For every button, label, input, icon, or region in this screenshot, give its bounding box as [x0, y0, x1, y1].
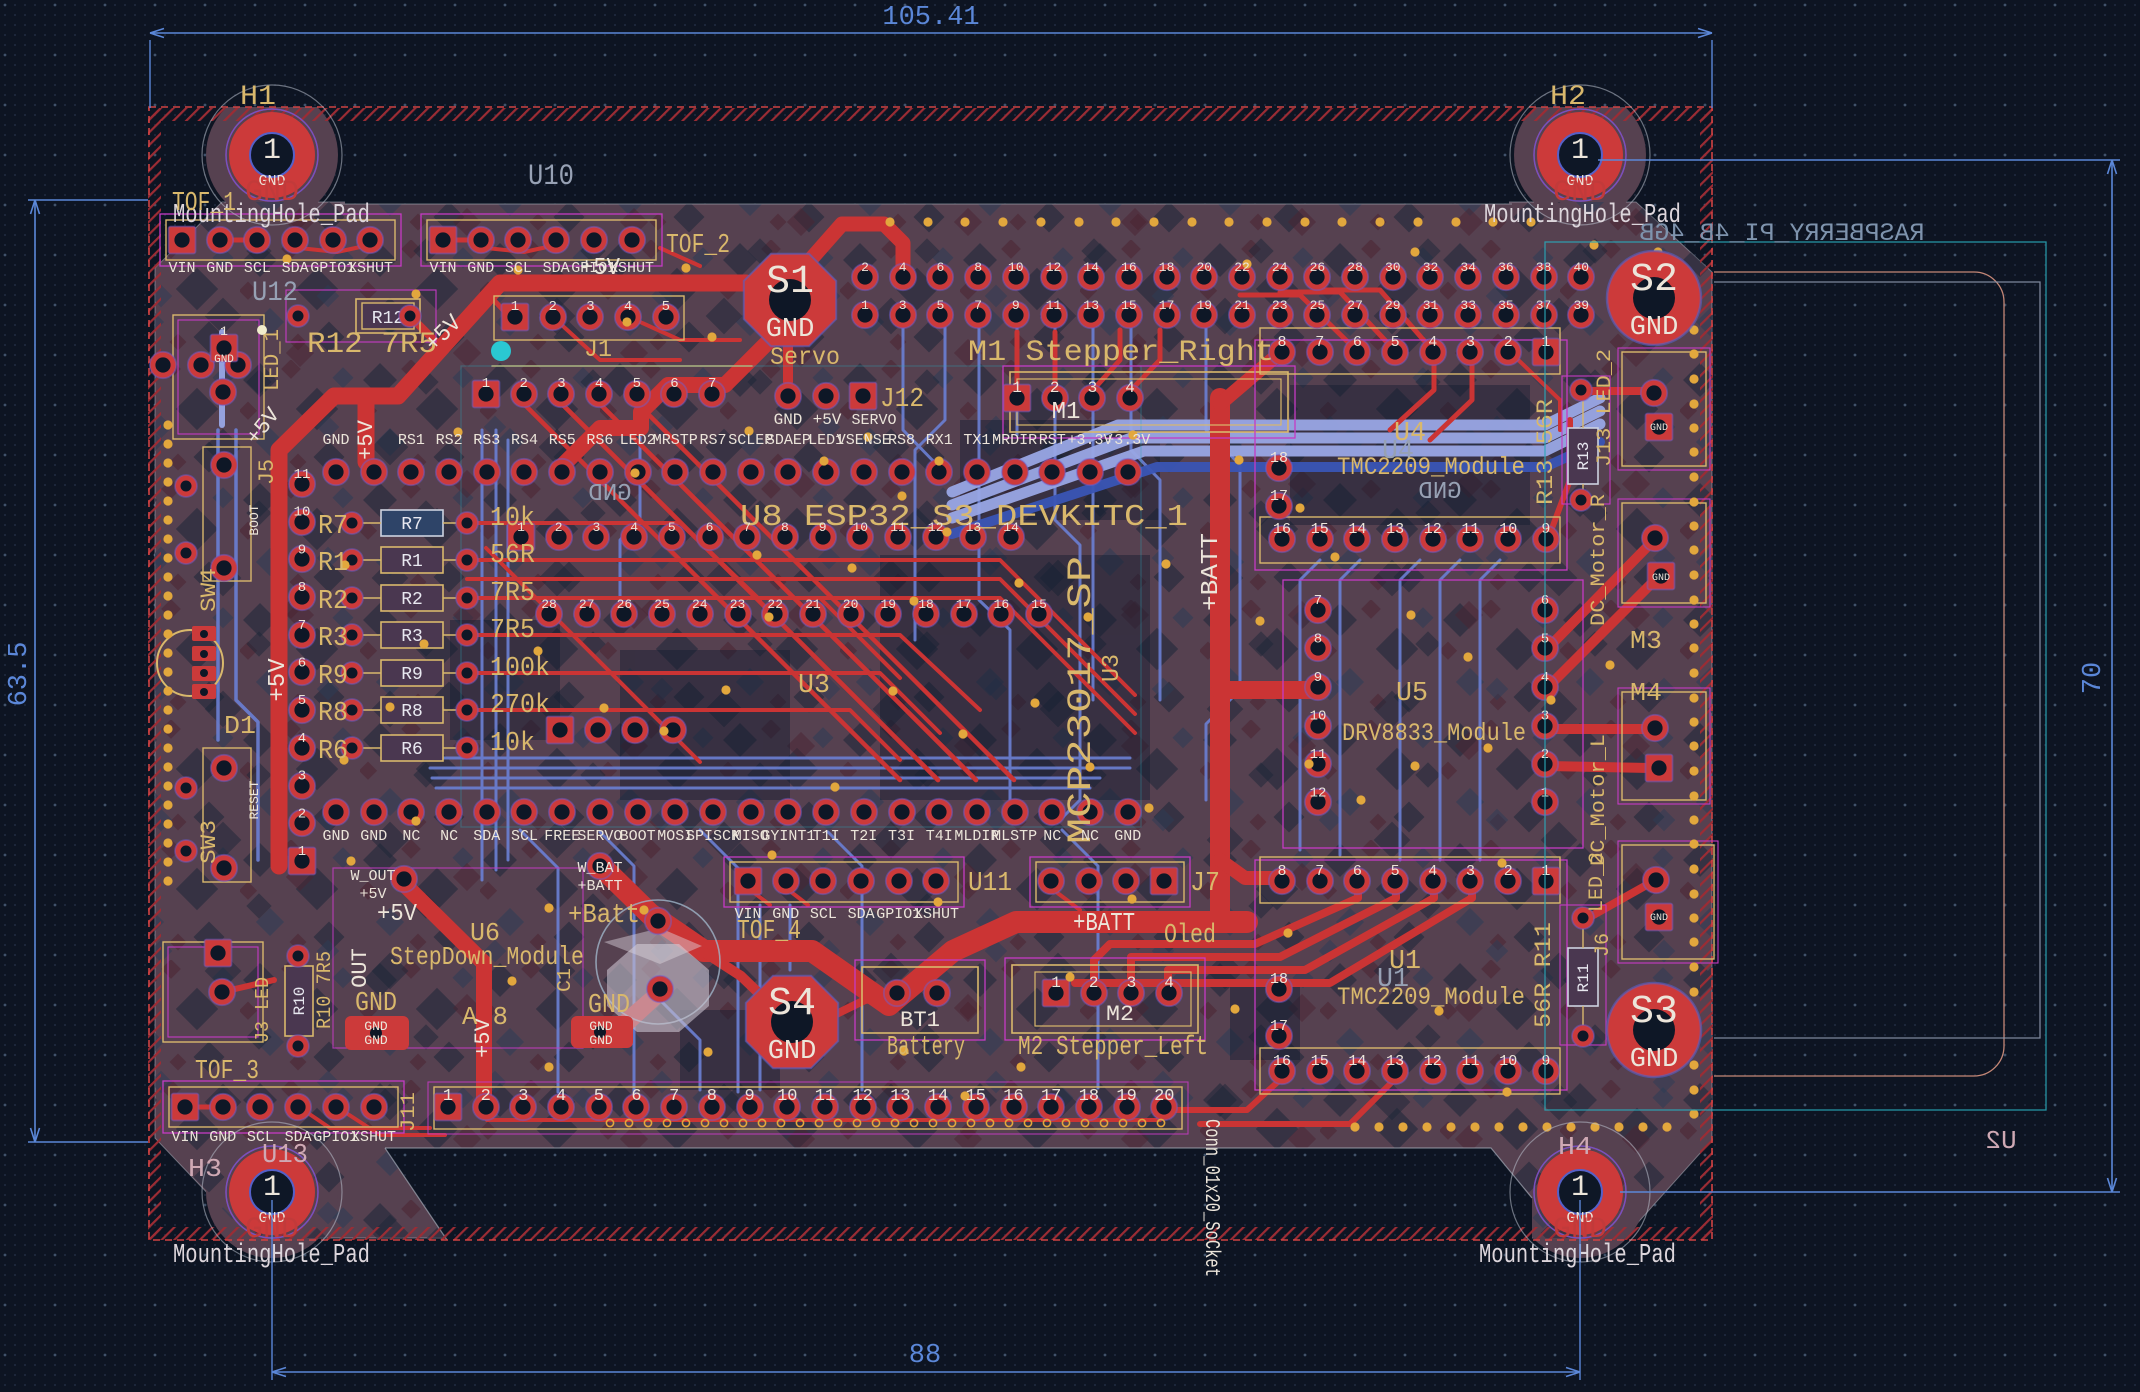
svg-text:18: 18 — [1270, 971, 1288, 988]
svg-text:8: 8 — [1277, 863, 1286, 880]
svg-text:16: 16 — [994, 597, 1010, 612]
svg-text:S2: S2 — [1630, 258, 1678, 303]
svg-text:100k: 100k — [490, 654, 550, 684]
svg-text:3: 3 — [1466, 334, 1475, 351]
svg-text:7: 7 — [298, 618, 306, 634]
svg-text:13: 13 — [966, 520, 982, 535]
svg-text:U3: U3 — [798, 671, 830, 701]
svg-text:11: 11 — [1461, 1053, 1479, 1070]
svg-text:R13 56R: R13 56R — [1533, 399, 1559, 505]
svg-text:19: 19 — [1116, 1087, 1136, 1106]
svg-text:88: 88 — [909, 1341, 941, 1371]
svg-text:NC: NC — [402, 828, 420, 845]
svg-text:105.41: 105.41 — [882, 3, 979, 33]
svg-text:34: 34 — [1460, 260, 1476, 275]
svg-text:R2: R2 — [401, 590, 423, 610]
svg-text:TOF_1: TOF_1 — [172, 189, 236, 219]
svg-text:30: 30 — [1385, 260, 1401, 275]
svg-text:StepDown_Module: StepDown_Module — [390, 942, 584, 972]
svg-text:17: 17 — [1159, 298, 1175, 313]
svg-text:9: 9 — [1314, 670, 1322, 686]
svg-text:8: 8 — [1277, 334, 1286, 351]
svg-text:U12: U12 — [252, 278, 298, 309]
svg-text:H2: H2 — [1550, 82, 1586, 113]
svg-text:VIN: VIN — [168, 260, 195, 277]
svg-text:1: 1 — [482, 376, 490, 392]
svg-text:R9: R9 — [401, 665, 423, 685]
svg-text:21: 21 — [1234, 298, 1250, 313]
svg-text:R2: R2 — [318, 587, 348, 617]
svg-text:7: 7 — [1315, 334, 1324, 351]
svg-text:GND: GND — [768, 1037, 817, 1067]
svg-text:5: 5 — [633, 376, 641, 392]
svg-text:+Batt: +Batt — [568, 901, 640, 931]
svg-text:MCP23017_SP: MCP23017_SP — [1063, 556, 1101, 844]
svg-text:SCL: SCL — [511, 828, 538, 845]
svg-text:LED2: LED2 — [620, 432, 656, 449]
svg-text:+5V: +5V — [377, 901, 418, 928]
svg-text:11: 11 — [890, 520, 906, 535]
svg-text:J5: J5 — [255, 459, 280, 485]
svg-text:5: 5 — [594, 1087, 604, 1106]
svg-text:Conn_01x20_SoCket: Conn_01x20_SoCket — [1199, 1119, 1222, 1277]
svg-text:27: 27 — [579, 597, 595, 612]
svg-text:33: 33 — [1460, 298, 1476, 313]
svg-text:DC_Motor_L: DC_Motor_L — [1588, 734, 1611, 866]
svg-text:6: 6 — [706, 520, 714, 535]
svg-text:2: 2 — [1089, 974, 1099, 992]
svg-text:1: 1 — [1571, 134, 1589, 168]
svg-text:21: 21 — [805, 597, 821, 612]
svg-text:5: 5 — [662, 299, 670, 315]
svg-text:24: 24 — [1272, 260, 1288, 275]
svg-text:6: 6 — [1353, 863, 1362, 880]
svg-text:9: 9 — [1541, 521, 1550, 538]
svg-text:RS3: RS3 — [473, 432, 500, 449]
svg-text:17: 17 — [956, 597, 972, 612]
svg-text:GND: GND — [1650, 913, 1668, 924]
svg-text:17: 17 — [1270, 488, 1288, 505]
svg-text:U11: U11 — [968, 869, 1012, 899]
svg-text:10k: 10k — [490, 729, 535, 759]
svg-text:RS2: RS2 — [436, 432, 463, 449]
svg-text:GND: GND — [588, 481, 631, 508]
svg-text:10: 10 — [1499, 521, 1517, 538]
svg-text:1: 1 — [263, 1171, 281, 1205]
svg-text:18: 18 — [1159, 260, 1175, 275]
svg-text:5: 5 — [1391, 334, 1400, 351]
svg-text:16: 16 — [1273, 1053, 1291, 1070]
svg-text:VIN: VIN — [734, 906, 761, 923]
svg-text:8: 8 — [707, 1087, 717, 1106]
svg-text:U3: U3 — [1099, 654, 1126, 682]
svg-text:16: 16 — [1003, 1087, 1023, 1106]
svg-text:16: 16 — [1121, 260, 1137, 275]
svg-text:GND: GND — [322, 828, 349, 845]
svg-text:18: 18 — [1079, 1087, 1099, 1106]
svg-text:J13 LED_2: J13 LED_2 — [1594, 349, 1617, 467]
svg-text:SDA: SDA — [543, 260, 570, 277]
svg-text:15: 15 — [1311, 1053, 1329, 1070]
svg-text:R10 7R5: R10 7R5 — [314, 951, 337, 1029]
svg-text:2: 2 — [1504, 863, 1513, 880]
svg-text:1: 1 — [517, 520, 525, 535]
svg-text:39: 39 — [1573, 298, 1589, 313]
svg-text:4: 4 — [1164, 974, 1174, 992]
svg-text:SDA: SDA — [848, 906, 875, 923]
svg-text:12: 12 — [1424, 521, 1442, 538]
svg-text:RST: RST — [1039, 432, 1066, 449]
svg-text:SERVO: SERVO — [851, 412, 896, 429]
svg-text:7: 7 — [743, 520, 751, 535]
svg-text:6: 6 — [631, 1087, 641, 1106]
svg-text:T4I: T4I — [926, 828, 953, 845]
svg-text:20: 20 — [1196, 260, 1212, 275]
svg-text:20: 20 — [1154, 1087, 1174, 1106]
svg-text:R9: R9 — [318, 662, 348, 692]
svg-text:1: 1 — [443, 1087, 453, 1106]
svg-text:7: 7 — [1315, 863, 1324, 880]
svg-text:+5V: +5V — [265, 658, 292, 702]
svg-text:10: 10 — [852, 520, 868, 535]
svg-text:35: 35 — [1498, 298, 1514, 313]
svg-text:+5V: +5V — [354, 419, 379, 459]
svg-text:15: 15 — [966, 1087, 986, 1106]
svg-text:+BATT: +BATT — [1073, 908, 1135, 938]
svg-text:31: 31 — [1423, 298, 1439, 313]
svg-text:GND: GND — [322, 432, 349, 449]
svg-text:2: 2 — [519, 376, 527, 392]
svg-text:15: 15 — [1031, 597, 1047, 612]
svg-text:VSENSE: VSENSE — [837, 432, 891, 449]
svg-text:270k: 270k — [490, 691, 550, 721]
svg-text:Battery: Battery — [887, 1033, 965, 1063]
svg-text:3: 3 — [592, 520, 600, 535]
svg-text:W_OUT: W_OUT — [350, 868, 395, 885]
svg-text:T1I: T1I — [813, 828, 840, 845]
svg-text:Servo: Servo — [770, 343, 840, 372]
svg-text:3: 3 — [586, 299, 594, 315]
svg-text:3: 3 — [557, 376, 565, 392]
svg-text:10k: 10k — [490, 504, 535, 534]
svg-text:28: 28 — [541, 597, 557, 612]
svg-text:36: 36 — [1498, 260, 1514, 275]
svg-text:VIN: VIN — [429, 260, 456, 277]
svg-text:RS8: RS8 — [888, 432, 915, 449]
svg-text:SCL: SCL — [244, 260, 271, 277]
svg-text:H3: H3 — [188, 1154, 222, 1184]
svg-text:GND: GND — [360, 828, 387, 845]
svg-text:7: 7 — [669, 1087, 679, 1106]
svg-text:RESET: RESET — [247, 780, 262, 819]
svg-text:U13: U13 — [262, 1141, 308, 1171]
svg-text:12: 12 — [1424, 1053, 1442, 1070]
svg-text:OUT: OUT — [348, 948, 373, 988]
svg-text:13: 13 — [890, 1087, 910, 1106]
svg-text:4: 4 — [630, 520, 638, 535]
svg-text:6: 6 — [936, 260, 944, 275]
svg-text:2: 2 — [481, 1087, 491, 1106]
svg-text:14: 14 — [928, 1087, 948, 1106]
svg-text:SDA: SDA — [473, 828, 500, 845]
svg-text:2: 2 — [298, 806, 306, 822]
svg-text:2: 2 — [861, 260, 869, 275]
svg-text:GND: GND — [364, 1033, 388, 1048]
svg-text:19: 19 — [1196, 298, 1212, 313]
svg-text:14: 14 — [1003, 520, 1019, 535]
svg-text:10: 10 — [1499, 1053, 1517, 1070]
svg-text:3: 3 — [1088, 379, 1098, 397]
svg-text:12: 12 — [1046, 260, 1062, 275]
svg-text:T2I: T2I — [850, 828, 877, 845]
svg-text:10: 10 — [777, 1087, 797, 1106]
svg-text:11: 11 — [294, 467, 311, 483]
svg-text:8: 8 — [974, 260, 982, 275]
svg-text:20: 20 — [843, 597, 859, 612]
svg-text:M2 Stepper_Left: M2 Stepper_Left — [1018, 1033, 1208, 1063]
svg-text:RASPBERRY_PI_4B_4GB: RASPBERRY_PI_4B_4GB — [1639, 219, 1924, 248]
svg-text:U10: U10 — [528, 160, 574, 194]
svg-text:1: 1 — [263, 134, 281, 168]
svg-text:17: 17 — [1041, 1087, 1061, 1106]
svg-text:GND: GND — [1114, 828, 1141, 845]
svg-text:8: 8 — [298, 580, 306, 596]
svg-text:MLSTP: MLSTP — [992, 828, 1037, 845]
svg-text:14: 14 — [1348, 521, 1366, 538]
svg-text:BOOT: BOOT — [620, 828, 656, 845]
svg-text:NC: NC — [1081, 828, 1099, 845]
svg-text:9: 9 — [1541, 1053, 1550, 1070]
svg-text:23: 23 — [730, 597, 746, 612]
svg-text:5: 5 — [1391, 863, 1400, 880]
svg-text:RS4: RS4 — [511, 432, 538, 449]
svg-text:C1: C1 — [554, 968, 576, 992]
svg-text:8: 8 — [1314, 632, 1322, 648]
svg-text:40: 40 — [1573, 260, 1589, 275]
svg-text:14: 14 — [1348, 1053, 1366, 1070]
svg-text:XSHUT: XSHUT — [351, 1129, 396, 1146]
svg-text:M4: M4 — [1630, 678, 1662, 708]
svg-text:U2: U2 — [1985, 1126, 2016, 1156]
svg-text:12: 12 — [1310, 786, 1327, 802]
svg-text:R3: R3 — [318, 624, 348, 654]
svg-text:H1: H1 — [240, 82, 276, 113]
svg-text:14: 14 — [1083, 260, 1099, 275]
svg-text:M1: M1 — [1052, 399, 1081, 426]
svg-text:R7: R7 — [318, 512, 348, 542]
svg-text:11: 11 — [1046, 298, 1062, 313]
svg-text:9: 9 — [819, 520, 827, 535]
svg-text:29: 29 — [1385, 298, 1401, 313]
svg-text:GND: GND — [588, 991, 630, 1021]
svg-text:11: 11 — [1310, 747, 1327, 763]
svg-text:NC: NC — [1043, 828, 1061, 845]
svg-text:M1 Stepper_Right: M1 Stepper_Right — [968, 336, 1274, 370]
svg-text:5: 5 — [668, 520, 676, 535]
svg-text:RX1: RX1 — [926, 432, 953, 449]
svg-text:4: 4 — [1428, 334, 1437, 351]
svg-text:22: 22 — [1234, 260, 1250, 275]
svg-text:63.5: 63.5 — [5, 642, 35, 707]
svg-text:4: 4 — [595, 376, 603, 392]
svg-text:R6: R6 — [318, 737, 348, 767]
svg-text:12: 12 — [852, 1087, 872, 1106]
svg-text:R8: R8 — [401, 702, 423, 722]
svg-text:11: 11 — [815, 1087, 835, 1106]
svg-text:R6: R6 — [401, 740, 423, 760]
svg-text:10: 10 — [1008, 260, 1024, 275]
svg-text:A 8: A 8 — [462, 1002, 508, 1032]
svg-text:J3 LED: J3 LED — [252, 977, 274, 1043]
svg-text:GND: GND — [467, 260, 494, 277]
svg-text:5: 5 — [298, 693, 306, 709]
svg-text:MRDIR: MRDIR — [992, 432, 1037, 449]
svg-text:56R: 56R — [490, 541, 535, 571]
svg-text:15: 15 — [1121, 298, 1137, 313]
svg-text:TMC2209_Module: TMC2209_Module — [1337, 983, 1525, 1012]
svg-text:7R5: 7R5 — [490, 616, 535, 646]
svg-text:S3: S3 — [1630, 990, 1678, 1035]
svg-text:GND: GND — [774, 411, 803, 429]
svg-text:4: 4 — [1125, 379, 1135, 397]
svg-text:RS7: RS7 — [699, 432, 726, 449]
svg-text:70: 70 — [2079, 662, 2109, 694]
svg-text:17: 17 — [1270, 1018, 1288, 1035]
svg-text:FREE: FREE — [544, 828, 580, 845]
svg-text:LED_2: LED_2 — [1586, 852, 1609, 912]
svg-text:BT1: BT1 — [900, 1008, 940, 1033]
svg-text:28: 28 — [1347, 260, 1363, 275]
svg-text:1: 1 — [220, 324, 228, 339]
svg-text:+5V: +5V — [359, 886, 386, 903]
svg-text:2: 2 — [1504, 334, 1513, 351]
svg-text:GND: GND — [766, 315, 815, 345]
svg-text:SW4: SW4 — [197, 568, 222, 612]
svg-text:S1: S1 — [766, 260, 814, 305]
svg-text:D1: D1 — [224, 711, 256, 741]
svg-text:R1: R1 — [318, 549, 348, 579]
svg-text:J7: J7 — [1190, 869, 1220, 899]
svg-text:GND: GND — [772, 906, 799, 923]
svg-text:9: 9 — [1012, 298, 1020, 313]
svg-text:MRSTP: MRSTP — [653, 432, 698, 449]
svg-text:J11: J11 — [398, 1092, 421, 1132]
svg-text:15: 15 — [1311, 521, 1329, 538]
svg-text:16: 16 — [1273, 521, 1291, 538]
svg-text:GND: GND — [1652, 573, 1670, 584]
svg-text:GND: GND — [1630, 313, 1679, 343]
svg-text:5: 5 — [936, 298, 944, 313]
svg-text:1: 1 — [1012, 379, 1022, 397]
svg-text:11: 11 — [1461, 521, 1479, 538]
svg-text:9: 9 — [744, 1087, 754, 1106]
svg-text:SDA: SDA — [282, 260, 309, 277]
svg-text:J12: J12 — [880, 385, 924, 415]
svg-text:SCL: SCL — [505, 260, 532, 277]
svg-text:4: 4 — [899, 260, 907, 275]
svg-text:S4: S4 — [768, 982, 816, 1027]
svg-text:SERVO: SERVO — [577, 828, 622, 845]
svg-text:18: 18 — [918, 597, 934, 612]
svg-text:4: 4 — [624, 299, 632, 315]
svg-text:2: 2 — [548, 299, 556, 315]
svg-text:+BATT: +BATT — [1198, 533, 1225, 611]
svg-text:SDAEP: SDAEP — [766, 432, 811, 449]
svg-text:13: 13 — [1083, 298, 1099, 313]
svg-text:1: 1 — [1541, 863, 1550, 880]
svg-text:XSHUT: XSHUT — [348, 260, 393, 277]
svg-text:GND: GND — [1650, 423, 1668, 434]
svg-text:MountingHole_Pad: MountingHole_Pad — [1479, 1241, 1676, 1271]
svg-text:37: 37 — [1536, 298, 1552, 313]
svg-text:J1: J1 — [584, 335, 612, 364]
svg-text:GND: GND — [364, 1019, 388, 1034]
svg-text:10: 10 — [1310, 709, 1327, 725]
svg-text:H4: H4 — [1558, 1132, 1592, 1162]
svg-text:TX1: TX1 — [963, 432, 990, 449]
svg-text:TOF_3: TOF_3 — [195, 1057, 259, 1087]
svg-text:GND: GND — [214, 354, 234, 366]
svg-text:GND: GND — [589, 1019, 613, 1034]
svg-text:1: 1 — [1541, 334, 1550, 351]
svg-text:3: 3 — [899, 298, 907, 313]
svg-text:M2: M2 — [1106, 1002, 1134, 1027]
svg-text:19: 19 — [880, 597, 896, 612]
svg-text:GND: GND — [1630, 1045, 1679, 1075]
svg-text:LED_1: LED_1 — [260, 329, 285, 391]
svg-text:M3: M3 — [1630, 626, 1662, 656]
svg-text:R7: R7 — [401, 515, 423, 535]
svg-text:9: 9 — [298, 542, 306, 558]
svg-text:1: 1 — [1571, 1171, 1589, 1205]
svg-text:J6: J6 — [1592, 933, 1615, 957]
svg-text:VIN: VIN — [171, 1129, 198, 1146]
svg-text:3: 3 — [298, 769, 306, 785]
svg-text:R10: R10 — [291, 987, 309, 1016]
svg-text:RS6: RS6 — [586, 432, 613, 449]
svg-text:24: 24 — [692, 597, 708, 612]
svg-text:R13: R13 — [1575, 442, 1593, 471]
svg-text:6: 6 — [1353, 334, 1362, 351]
svg-text:GND: GND — [1418, 479, 1461, 506]
svg-text:R11: R11 — [1575, 964, 1593, 993]
svg-text:RS1: RS1 — [398, 432, 425, 449]
svg-text:T3I: T3I — [888, 828, 915, 845]
svg-text:7: 7 — [1314, 593, 1322, 609]
svg-text:1: 1 — [861, 298, 869, 313]
svg-text:10: 10 — [294, 505, 311, 521]
svg-text:TMC2209_Module: TMC2209_Module — [1337, 453, 1525, 482]
svg-text:7: 7 — [974, 298, 982, 313]
svg-text:2: 2 — [555, 520, 563, 535]
svg-text:4: 4 — [1428, 863, 1437, 880]
svg-text:BOOT: BOOT — [247, 504, 262, 535]
svg-text:18: 18 — [1270, 450, 1288, 467]
svg-text:RS5: RS5 — [549, 432, 576, 449]
svg-text:3: 3 — [518, 1087, 528, 1106]
svg-text:22: 22 — [767, 597, 783, 612]
svg-text:GND: GND — [206, 260, 233, 277]
svg-text:DRV8833_Module: DRV8833_Module — [1342, 719, 1526, 748]
svg-text:U8 ESP32_S3_DEVKITC_1: U8 ESP32_S3_DEVKITC_1 — [740, 500, 1188, 535]
svg-text:26: 26 — [1310, 260, 1326, 275]
svg-text:27: 27 — [1347, 298, 1363, 313]
svg-text:+5V: +5V — [580, 255, 621, 282]
svg-text:6: 6 — [670, 376, 678, 392]
svg-text:Oled: Oled — [1164, 921, 1216, 951]
svg-text:4: 4 — [556, 1087, 566, 1106]
svg-text:1: 1 — [1051, 974, 1061, 992]
